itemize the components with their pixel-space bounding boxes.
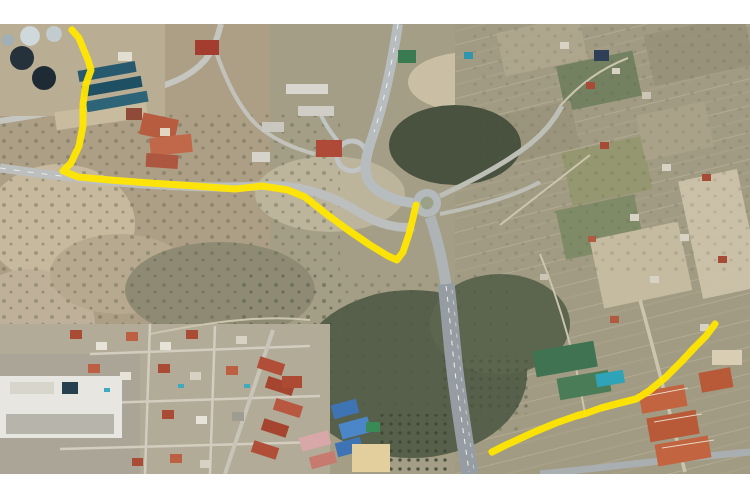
- satellite-map-image: [0, 24, 750, 474]
- map-svg: [0, 24, 750, 474]
- letterbox-bottom: [0, 474, 750, 500]
- screenshot-canvas: [0, 0, 750, 500]
- letterbox-top: [0, 0, 750, 24]
